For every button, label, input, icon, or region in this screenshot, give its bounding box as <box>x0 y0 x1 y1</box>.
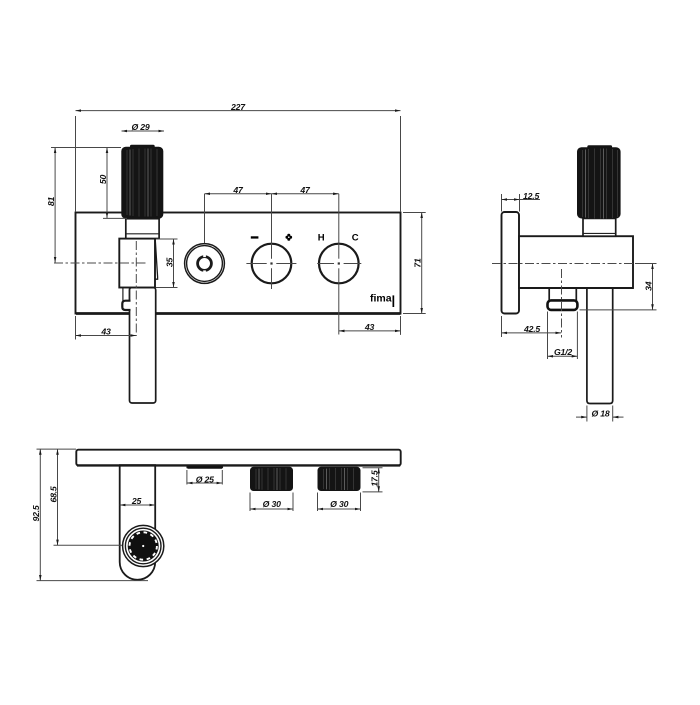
svg-text:Ø 30: Ø 30 <box>263 499 281 509</box>
svg-text:47: 47 <box>232 185 244 195</box>
svg-text:35: 35 <box>164 258 174 268</box>
svg-text:81: 81 <box>46 197 56 207</box>
svg-text:fima: fima <box>370 292 392 304</box>
svg-text:17.5: 17.5 <box>370 470 380 486</box>
svg-text:43: 43 <box>100 327 111 337</box>
svg-text:227: 227 <box>230 102 246 112</box>
svg-text:47: 47 <box>299 185 311 195</box>
svg-text:71: 71 <box>413 258 423 268</box>
svg-text:42.5: 42.5 <box>523 324 540 334</box>
svg-text:34: 34 <box>643 281 653 291</box>
svg-text:Ø 29: Ø 29 <box>131 122 149 132</box>
svg-text:Ø 18: Ø 18 <box>591 409 609 419</box>
svg-text:25: 25 <box>131 496 142 506</box>
svg-text:50: 50 <box>98 175 108 185</box>
svg-text:43: 43 <box>364 322 375 332</box>
svg-text:92.5: 92.5 <box>31 505 41 521</box>
svg-text:C: C <box>352 232 359 243</box>
svg-text:12.5: 12.5 <box>523 191 539 201</box>
svg-text:68.5: 68.5 <box>48 486 58 502</box>
svg-text:Ø 25: Ø 25 <box>196 474 214 484</box>
svg-text:H: H <box>318 232 325 243</box>
svg-text:G1/2: G1/2 <box>554 347 572 357</box>
svg-text:Ø 30: Ø 30 <box>330 499 348 509</box>
